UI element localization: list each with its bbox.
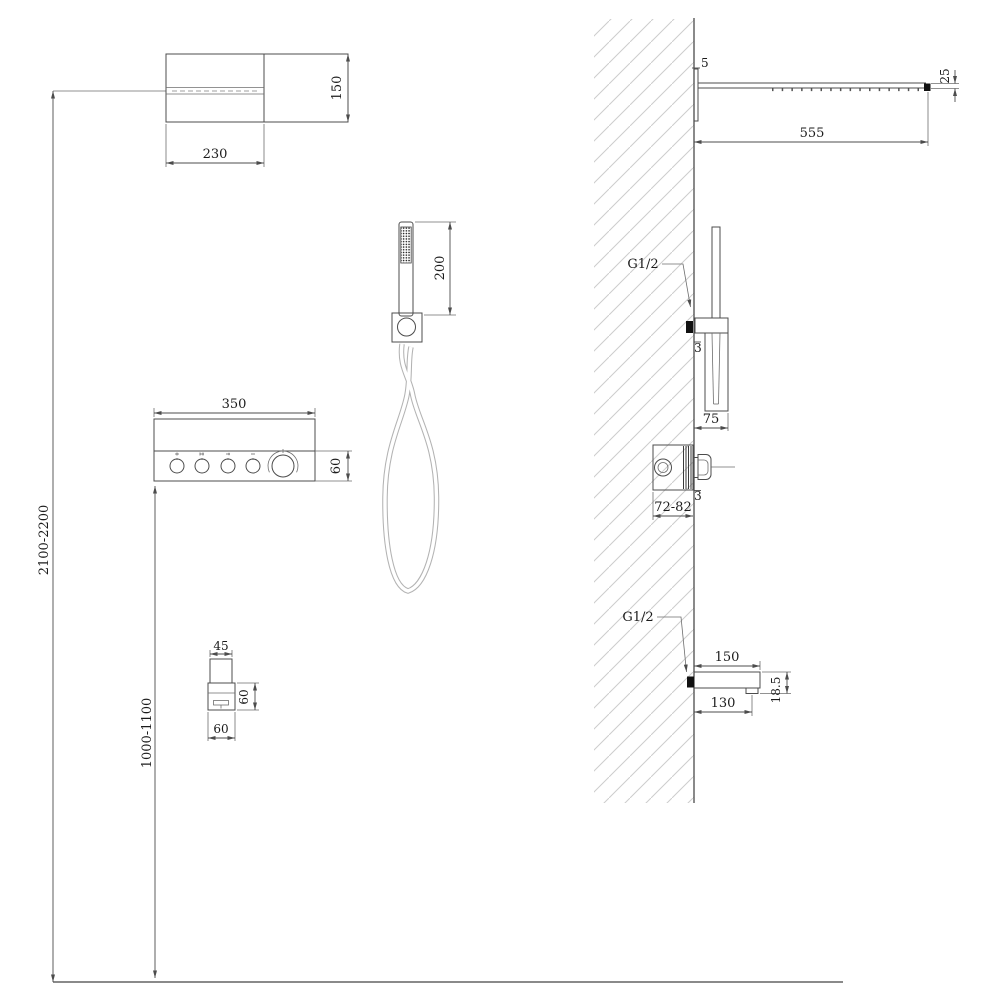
temperature-knob: [272, 455, 294, 477]
knob-4: [246, 459, 260, 473]
dim-valve-depth: 72-82: [654, 500, 691, 515]
dim-spout-body-height: 60: [237, 689, 251, 704]
handshower-holder: [695, 318, 728, 333]
spout-front: 45 60 60: [208, 639, 259, 741]
dim-spout-tube-width: 45: [213, 639, 228, 653]
knob-2: [195, 459, 209, 473]
dim-head-width: 230: [203, 147, 228, 162]
mixer-panel-front: 350 60: [154, 397, 352, 481]
handshower-lower-body: [705, 333, 728, 411]
knob-1: [170, 459, 184, 473]
spout-bar: [694, 672, 760, 688]
head-front-face: [166, 54, 264, 122]
dim-holder-depth: 75: [703, 412, 720, 427]
thread-label-shower: G1/2: [627, 257, 658, 272]
panel-body: [154, 419, 315, 481]
spout-outlet-nub: [746, 688, 758, 694]
dim-head-end-height: 25: [938, 68, 952, 83]
head-end-block: [924, 84, 931, 92]
shower-head-side: 5 555 25: [692, 56, 959, 146]
dim-spout-outlet-offset: 130: [711, 696, 736, 711]
dim-spout-body-width: 60: [213, 722, 228, 736]
knob-3: [221, 459, 235, 473]
dim-spout-mount-height: 1000-1100: [140, 698, 155, 769]
dim-head-length: 555: [800, 126, 825, 141]
dim-head-mount-height: 2100-2200: [37, 505, 52, 576]
spray-face: [401, 227, 411, 263]
spout-tube-front: [210, 659, 232, 683]
bracket-connector-circle: [398, 318, 416, 336]
inner-line: [719, 333, 721, 404]
panel-knobs: [170, 449, 298, 477]
dim-panel-strip-height: 60: [329, 458, 344, 475]
supply-connector-lower: [687, 677, 694, 688]
thread-label-spout: G1/2: [622, 610, 653, 625]
valve-handle: [698, 455, 711, 480]
shower-head-front: 230 150: [166, 54, 348, 167]
dim-spout-reach: 150: [715, 650, 740, 665]
spout-body-front: [208, 683, 235, 710]
dim-head-wall-gap: 5: [701, 56, 709, 70]
wall-hatch: [594, 19, 694, 803]
valve-handle-inner: [698, 460, 708, 475]
dim-panel-width: 350: [222, 397, 247, 412]
dim-valve-plate: 3: [694, 489, 702, 503]
installation-drawing: 2100-2200 1000-1100 230 150: [0, 0, 1000, 1000]
shower-hose: [385, 344, 437, 591]
dim-holder-plate: 3: [694, 341, 702, 355]
handshower-tube-side: [712, 227, 720, 318]
dim-handshower-length: 200: [433, 256, 448, 281]
dim-spout-end-height: 18.5: [769, 677, 783, 704]
inner-line: [712, 333, 714, 404]
shower-installation-diagram: 2100-2200 1000-1100 230 150: [0, 0, 1000, 1000]
supply-connector-upper: [686, 321, 693, 333]
knob-mode-icons: [175, 453, 255, 461]
height-dimensions: 2100-2200 1000-1100: [37, 91, 166, 982]
wall-section: [594, 18, 694, 803]
spout-outlet-front: [214, 701, 229, 706]
hand-shower-front: 200: [385, 222, 456, 591]
dim-head-height: 150: [330, 76, 345, 101]
hose-outlet-bracket: [392, 313, 422, 342]
